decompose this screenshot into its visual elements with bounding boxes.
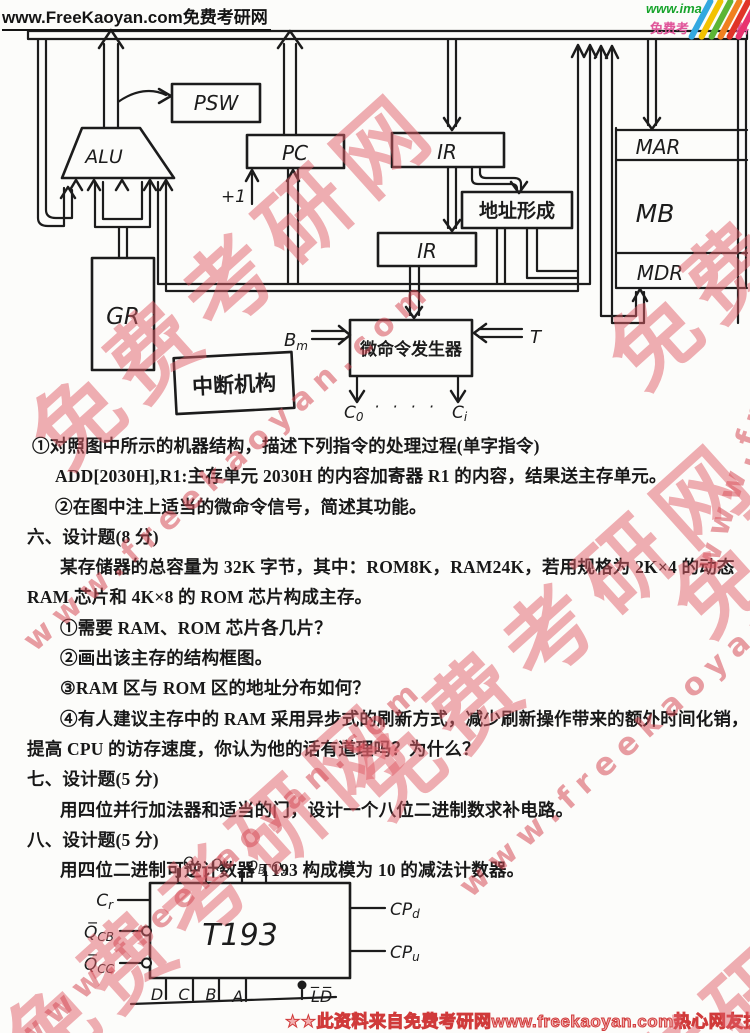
question-line: 七、设计题(5 分) bbox=[27, 764, 739, 794]
gr-label: GR bbox=[106, 304, 140, 330]
t193-pin-qcc: Q̅CC bbox=[84, 953, 115, 976]
logo-url-text: www.ima bbox=[646, 1, 702, 16]
pc-label: PC bbox=[282, 141, 308, 165]
question-line: ③RAM 区与 ROM 区的地址分布如何？ bbox=[27, 673, 739, 703]
dots-label: · · · · bbox=[374, 397, 438, 416]
question-line: ADD[2030H],R1:主存单元 2030H 的内容加寄器 R1 的内容，结… bbox=[27, 461, 739, 491]
t193-pin-qcb: Q̅CB bbox=[84, 921, 114, 944]
mdr-label: MDR bbox=[637, 261, 684, 285]
ld-bubble-icon bbox=[298, 981, 307, 990]
freekaoyan-logo: www.ima 免费考 料 bbox=[632, 0, 750, 40]
qcb-bubble-icon bbox=[142, 927, 151, 936]
ci-label: Ci bbox=[452, 403, 468, 424]
t193-pin-ld: L̅D̅ bbox=[310, 987, 332, 1006]
t193-pin-d: D bbox=[151, 985, 163, 1004]
question-line: 某存储器的总容量为 32K 字节，其中：ROM8K，RAM24K，若用规格为 2… bbox=[27, 552, 739, 582]
question-line: RAM 芯片和 4K×8 的 ROM 芯片构成主存。 bbox=[27, 582, 739, 612]
t193-pin-a: A bbox=[232, 987, 244, 1006]
alu-label: ALU bbox=[83, 146, 123, 168]
qcc-bubble-icon bbox=[142, 959, 151, 968]
micro-gen-label: 微命令发生器 bbox=[359, 339, 463, 360]
addr-form-label: 地址形成 bbox=[479, 199, 555, 222]
site-header-text: www.FreeKaoyan.com免费考研网 bbox=[2, 3, 271, 31]
question-line: ②画出该主存的结构框图。 bbox=[27, 643, 739, 673]
mb-label: MB bbox=[636, 199, 675, 228]
ir2-label: IR bbox=[417, 239, 437, 263]
psw-label: PSW bbox=[194, 91, 240, 115]
t193-label: T193 bbox=[202, 918, 278, 953]
c0-label: C0 bbox=[344, 403, 364, 424]
plus1-label: +1 bbox=[221, 187, 246, 207]
question-line: ②在图中注上适当的微命令信号，简述其功能。 bbox=[27, 492, 739, 522]
t-label: T bbox=[530, 327, 543, 348]
question-line: 六、设计题(8 分) bbox=[27, 522, 739, 552]
mar-label: MAR bbox=[636, 135, 681, 159]
question-line: ①对照图中所示的机器结构，描述下列指令的处理过程(单字指令) bbox=[27, 431, 739, 461]
question-line: 用四位二进制可逆计数器 T193 构成模为 10 的减法计数器。 bbox=[27, 855, 739, 885]
interrupt-label: 中断机构 bbox=[192, 371, 277, 399]
logo-cn-text-left: 免费考 bbox=[650, 18, 689, 37]
scanned-exam-page: www.FreeKaoyan.com免费考研网 www.ima 免费考 料 PS… bbox=[0, 0, 750, 1033]
question-line: 八、设计题(5 分) bbox=[27, 825, 739, 855]
question-line: ①需要 RAM、ROM 芯片各几片？ bbox=[27, 613, 739, 643]
question-text-block: ①对照图中所示的机器结构，描述下列指令的处理过程(单字指令) ADD[2030H… bbox=[27, 431, 739, 885]
t193-pin-b: B bbox=[206, 985, 217, 1004]
t193-pin-cpd: CPd bbox=[390, 900, 420, 921]
question-line: ④有人建议主存中的 RAM 采用异步式的刷新方式，减少刷新操作带来的额外时间化销… bbox=[27, 704, 739, 734]
ir1-label: IR bbox=[437, 140, 457, 164]
footer-banner: ★★此资料来自免费考研网www.freekaoyan.com热心网友提供★★★ bbox=[285, 1007, 750, 1031]
t193-pin-cpu: CPu bbox=[390, 943, 420, 964]
question-line: 用四位并行加法器和适当的门，设计一个八位二进制数求补电路。 bbox=[27, 795, 739, 825]
question-line: 提高 CPU 的访存速度，你认为他的话有道理吗？为什么？ bbox=[27, 734, 739, 764]
t193-pin-cr: Cr bbox=[96, 891, 114, 912]
bm-label: Bm bbox=[284, 330, 308, 353]
t193-pin-c: C bbox=[178, 985, 190, 1004]
